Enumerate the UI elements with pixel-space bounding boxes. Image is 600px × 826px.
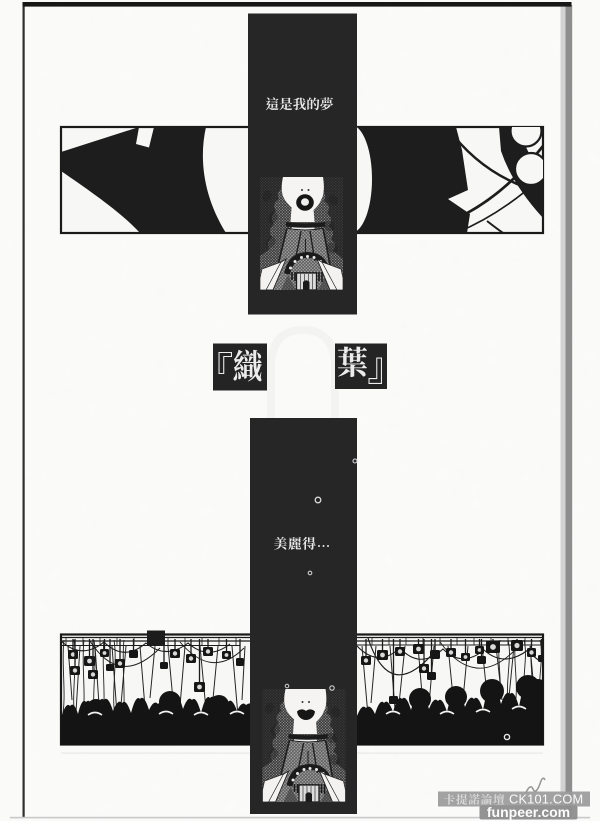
svg-text:funpeer.com: funpeer.com bbox=[487, 804, 570, 820]
